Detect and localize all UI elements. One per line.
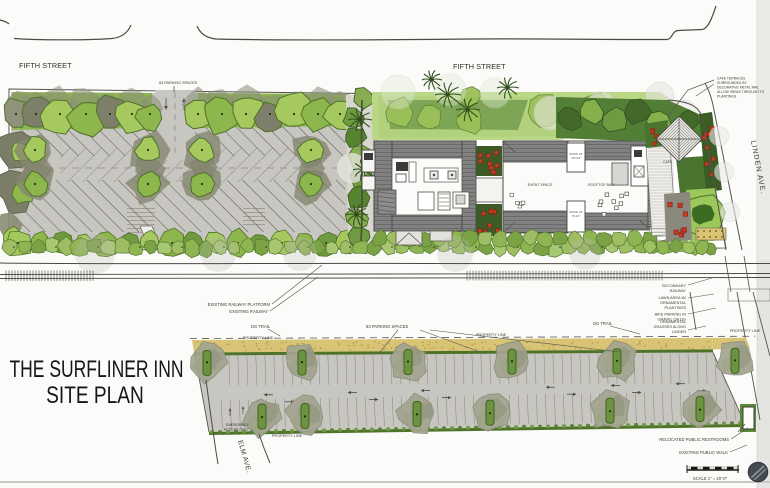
svg-text:CAFE TERRACES: CAFE TERRACES [717, 77, 746, 81]
svg-text:SCALE 1" = 20'-0": SCALE 1" = 20'-0" [693, 476, 728, 481]
svg-text:PLANTINGS: PLANTINGS [664, 306, 686, 310]
svg-text:ACCESS ONLY: ACCESS ONLY [224, 428, 250, 432]
svg-text:ROOFTOP BAR: ROOFTOP BAR [588, 183, 614, 187]
svg-text:EMERGENCY: EMERGENCY [226, 423, 250, 427]
svg-text:EXISTING RAILWAY PLATFORM: EXISTING RAILWAY PLATFORM [208, 302, 271, 307]
svg-text:83 PARKING SPACES: 83 PARKING SPACES [159, 81, 198, 85]
svg-text:83 PARKING SPACES: 83 PARKING SPACES [366, 324, 408, 329]
svg-text:8'x13': 8'x13' [572, 214, 580, 218]
svg-text:BIKE PARKING IN: BIKE PARKING IN [655, 313, 687, 317]
svg-text:ORNAMENTAL: ORNAMENTAL [660, 320, 686, 324]
svg-text:SECONDARY: SECONDARY [662, 284, 686, 288]
svg-text:FIFTH STREET: FIFTH STREET [19, 61, 72, 70]
svg-text:PROPERTY LINE: PROPERTY LINE [730, 329, 761, 333]
svg-text:10'x13': 10'x13' [571, 156, 581, 160]
svg-text:LINDEN: LINDEN [672, 330, 686, 334]
svg-text:PROPERTY LINE: PROPERTY LINE [243, 336, 274, 340]
svg-text:THE SURFLINER INN: THE SURFLINER INN [9, 355, 183, 383]
svg-text:DECORATIVE METAL RAIL: DECORATIVE METAL RAIL [717, 86, 759, 90]
svg-text:CAFE: CAFE [663, 160, 673, 164]
svg-text:EVENT SPACE: EVENT SPACE [528, 183, 553, 187]
svg-text:SITE PLAN: SITE PLAN [46, 381, 144, 409]
svg-text:FIFTH STREET: FIFTH STREET [453, 62, 506, 71]
svg-text:DG TRAIL: DG TRAIL [593, 321, 613, 326]
svg-text:PROPERTY LINE: PROPERTY LINE [476, 333, 507, 337]
svg-text:PROPERTY LINE: PROPERTY LINE [272, 434, 303, 438]
svg-text:ALLOW VIEWS THROUGH TO: ALLOW VIEWS THROUGH TO [717, 90, 765, 94]
svg-text:LAWN AREA W/: LAWN AREA W/ [659, 296, 687, 300]
svg-text:EXISTING RAILWAY: EXISTING RAILWAY [229, 309, 268, 314]
svg-text:RELOCATED PUBLIC RESTROOMS: RELOCATED PUBLIC RESTROOMS [659, 437, 729, 442]
svg-text:DG TRAIL: DG TRAIL [251, 324, 271, 329]
svg-text:RAILWAY: RAILWAY [670, 289, 687, 293]
svg-text:SURROUNDED BY: SURROUNDED BY [717, 81, 748, 85]
svg-text:GRASSES ALONG: GRASSES ALONG [654, 325, 687, 329]
svg-text:EXISTING PUBLIC WALK: EXISTING PUBLIC WALK [679, 450, 728, 455]
svg-text:PLANTINGS: PLANTINGS [717, 95, 737, 99]
svg-text:ORNAMENTAL: ORNAMENTAL [660, 301, 686, 305]
